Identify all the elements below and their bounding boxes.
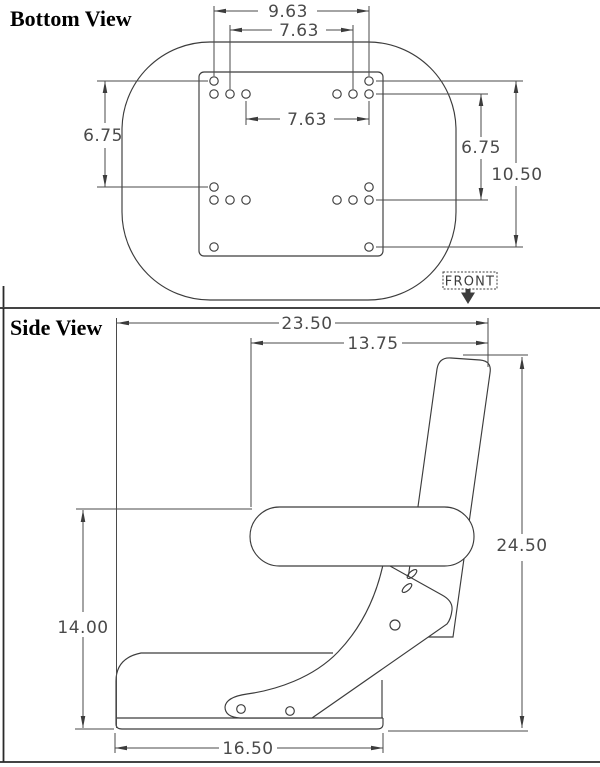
dim-mount-width-inner: 7.63 (230, 21, 353, 41)
mounting-hole (365, 77, 373, 85)
dim-value: 6.75 (461, 138, 501, 158)
mounting-hole (333, 90, 341, 98)
mounting-hole (210, 243, 218, 251)
mounting-hole (349, 90, 357, 98)
mounting-hole (210, 90, 218, 98)
dim-overall-height: 24.50 (496, 357, 547, 728)
dim-value: 10.50 (491, 165, 542, 185)
mounting-hole (242, 90, 250, 98)
mounting-hole (210, 183, 218, 191)
hinge-bracket-arm (225, 560, 452, 718)
dim-armrest-height: 14.00 (57, 510, 108, 728)
dim-backrest-top-depth: 13.75 (251, 334, 488, 354)
dim-value: 16.50 (222, 739, 273, 759)
mounting-holes (210, 77, 373, 251)
front-label: FRONT (443, 272, 497, 304)
dim-value: 9.63 (268, 2, 308, 22)
front-label-text: FRONT (445, 275, 495, 290)
side-view-title: Side View (10, 315, 102, 340)
dim-base-depth: 16.50 (115, 739, 383, 759)
dim-mount-width-outer: 9.63 (214, 2, 369, 22)
armrest-profile (250, 507, 474, 566)
bottom-view-drawing: Bottom View 9.63 (0, 0, 600, 307)
front-direction-arrow (461, 289, 475, 304)
mounting-hole (365, 183, 373, 191)
mounting-hole (210, 196, 218, 204)
dim-value: 23.50 (281, 314, 332, 334)
mounting-hole (349, 196, 357, 204)
dim-value: 7.63 (287, 110, 327, 130)
dim-overall-depth: 23.50 (117, 314, 488, 334)
dim-value: 13.75 (347, 334, 398, 354)
dim-mount-depth-left: 6.75 (83, 81, 123, 187)
mounting-hole (226, 90, 234, 98)
side-view-drawing: Side View 23.50 13.75 (0, 307, 600, 767)
dim-value: 6.75 (83, 126, 123, 146)
mounting-hole (365, 243, 373, 251)
mounting-hole (365, 196, 373, 204)
dim-mount-depth-total: 10.50 (491, 81, 542, 247)
bottom-view-title: Bottom View (10, 6, 132, 31)
dim-value: 24.50 (496, 536, 547, 556)
mounting-hole (210, 77, 218, 85)
mounting-plate (199, 72, 383, 256)
mounting-hole (242, 196, 250, 204)
mounting-hole (333, 196, 341, 204)
mounting-hole (226, 196, 234, 204)
mounting-hole (365, 90, 373, 98)
dim-mount-width-middle: 7.63 (246, 110, 369, 130)
dim-value: 7.63 (279, 21, 319, 41)
dim-value: 14.00 (57, 618, 108, 638)
